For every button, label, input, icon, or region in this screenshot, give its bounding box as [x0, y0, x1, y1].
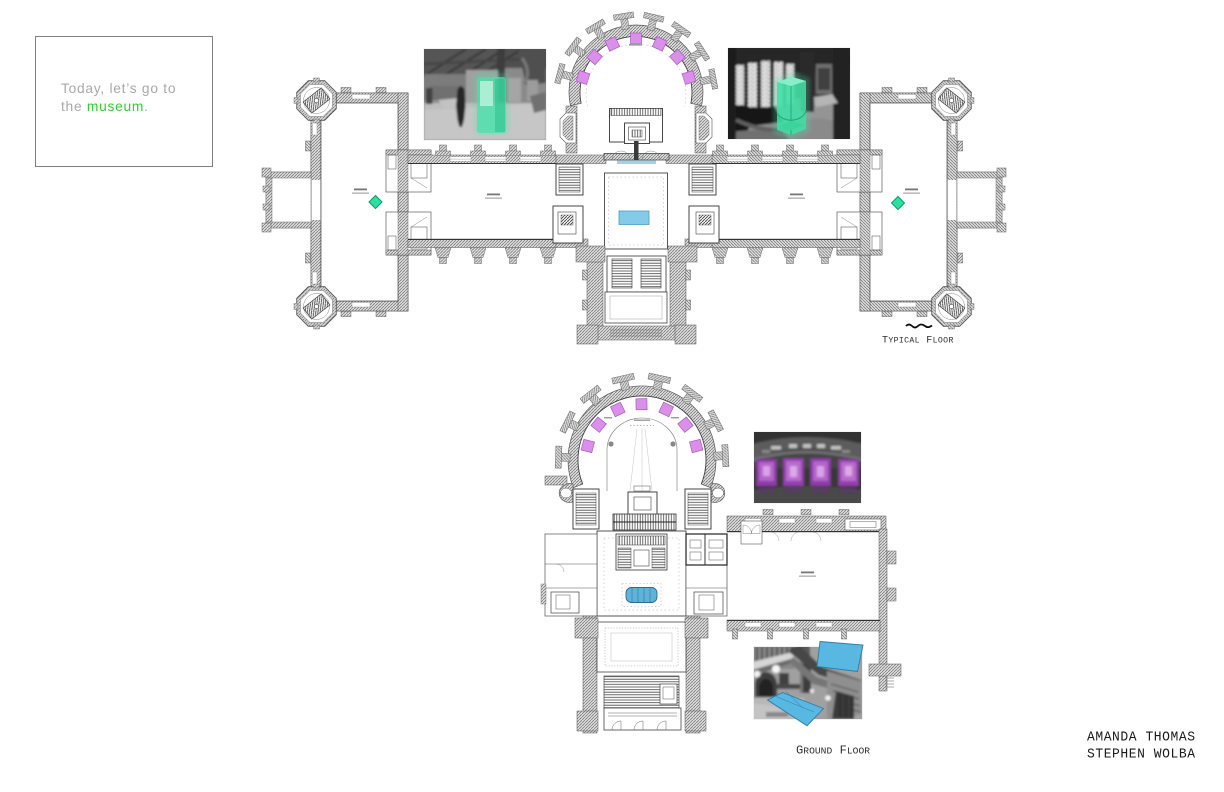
svg-text:GROUND FLOOR: GROUND FLOOR: [796, 744, 870, 758]
svg-text:TYPICAL FLOOR: TYPICAL FLOOR: [882, 336, 954, 347]
